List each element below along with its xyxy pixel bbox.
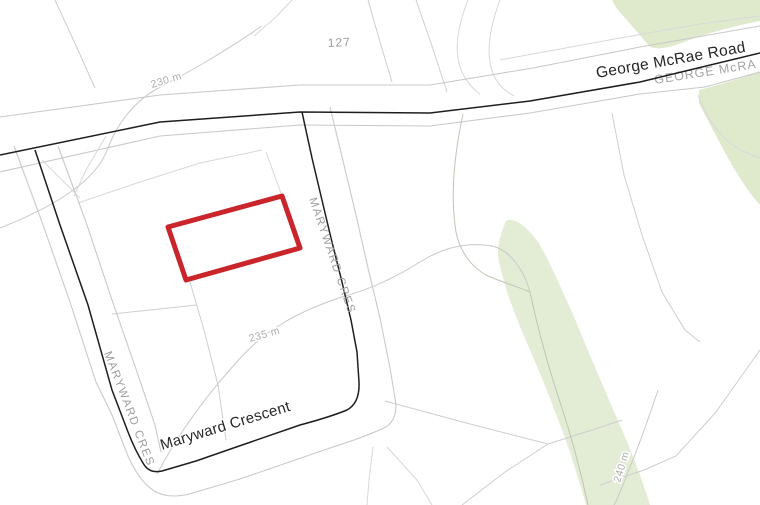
road-label-maryward-cres-right: MARYWARD CRES [306,196,357,316]
contour-label-235m: 235 m [248,325,282,345]
parcel-number-label: 127 [327,35,351,50]
map-viewport[interactable]: GEORGE McRA 127 George McRae Road MARYWA… [0,0,760,505]
junction-kerb-line [42,160,80,198]
road-edge-george-mcrae-south [0,72,760,172]
map-canvas[interactable]: GEORGE McRA 127 George McRae Road MARYWA… [0,0,760,505]
parcel-line [489,0,514,96]
parcel-line [416,0,447,92]
parcel-line [385,401,548,444]
lot-line [78,150,262,203]
parcel-line [55,0,95,88]
parcel-line [254,0,292,36]
contour-line-230 [0,26,262,228]
parcel-line [612,113,700,342]
road-label-maryward-crescent-bottom: Maryward Crescent [158,398,293,454]
lot-line [266,152,282,196]
junction-kerb-line [74,136,106,196]
lot-line [190,282,226,440]
parcel-line [387,447,432,505]
parcel-line [368,0,392,82]
parcel-line [367,447,373,505]
contour-label-230m: 230 m [149,70,183,91]
highlighted-parcel-outline[interactable] [168,196,300,280]
vegetation-area-right-edge [699,72,760,205]
parcel-line [462,444,548,505]
road-casing-maryward-crescent [35,112,359,472]
lot-line [112,305,197,314]
